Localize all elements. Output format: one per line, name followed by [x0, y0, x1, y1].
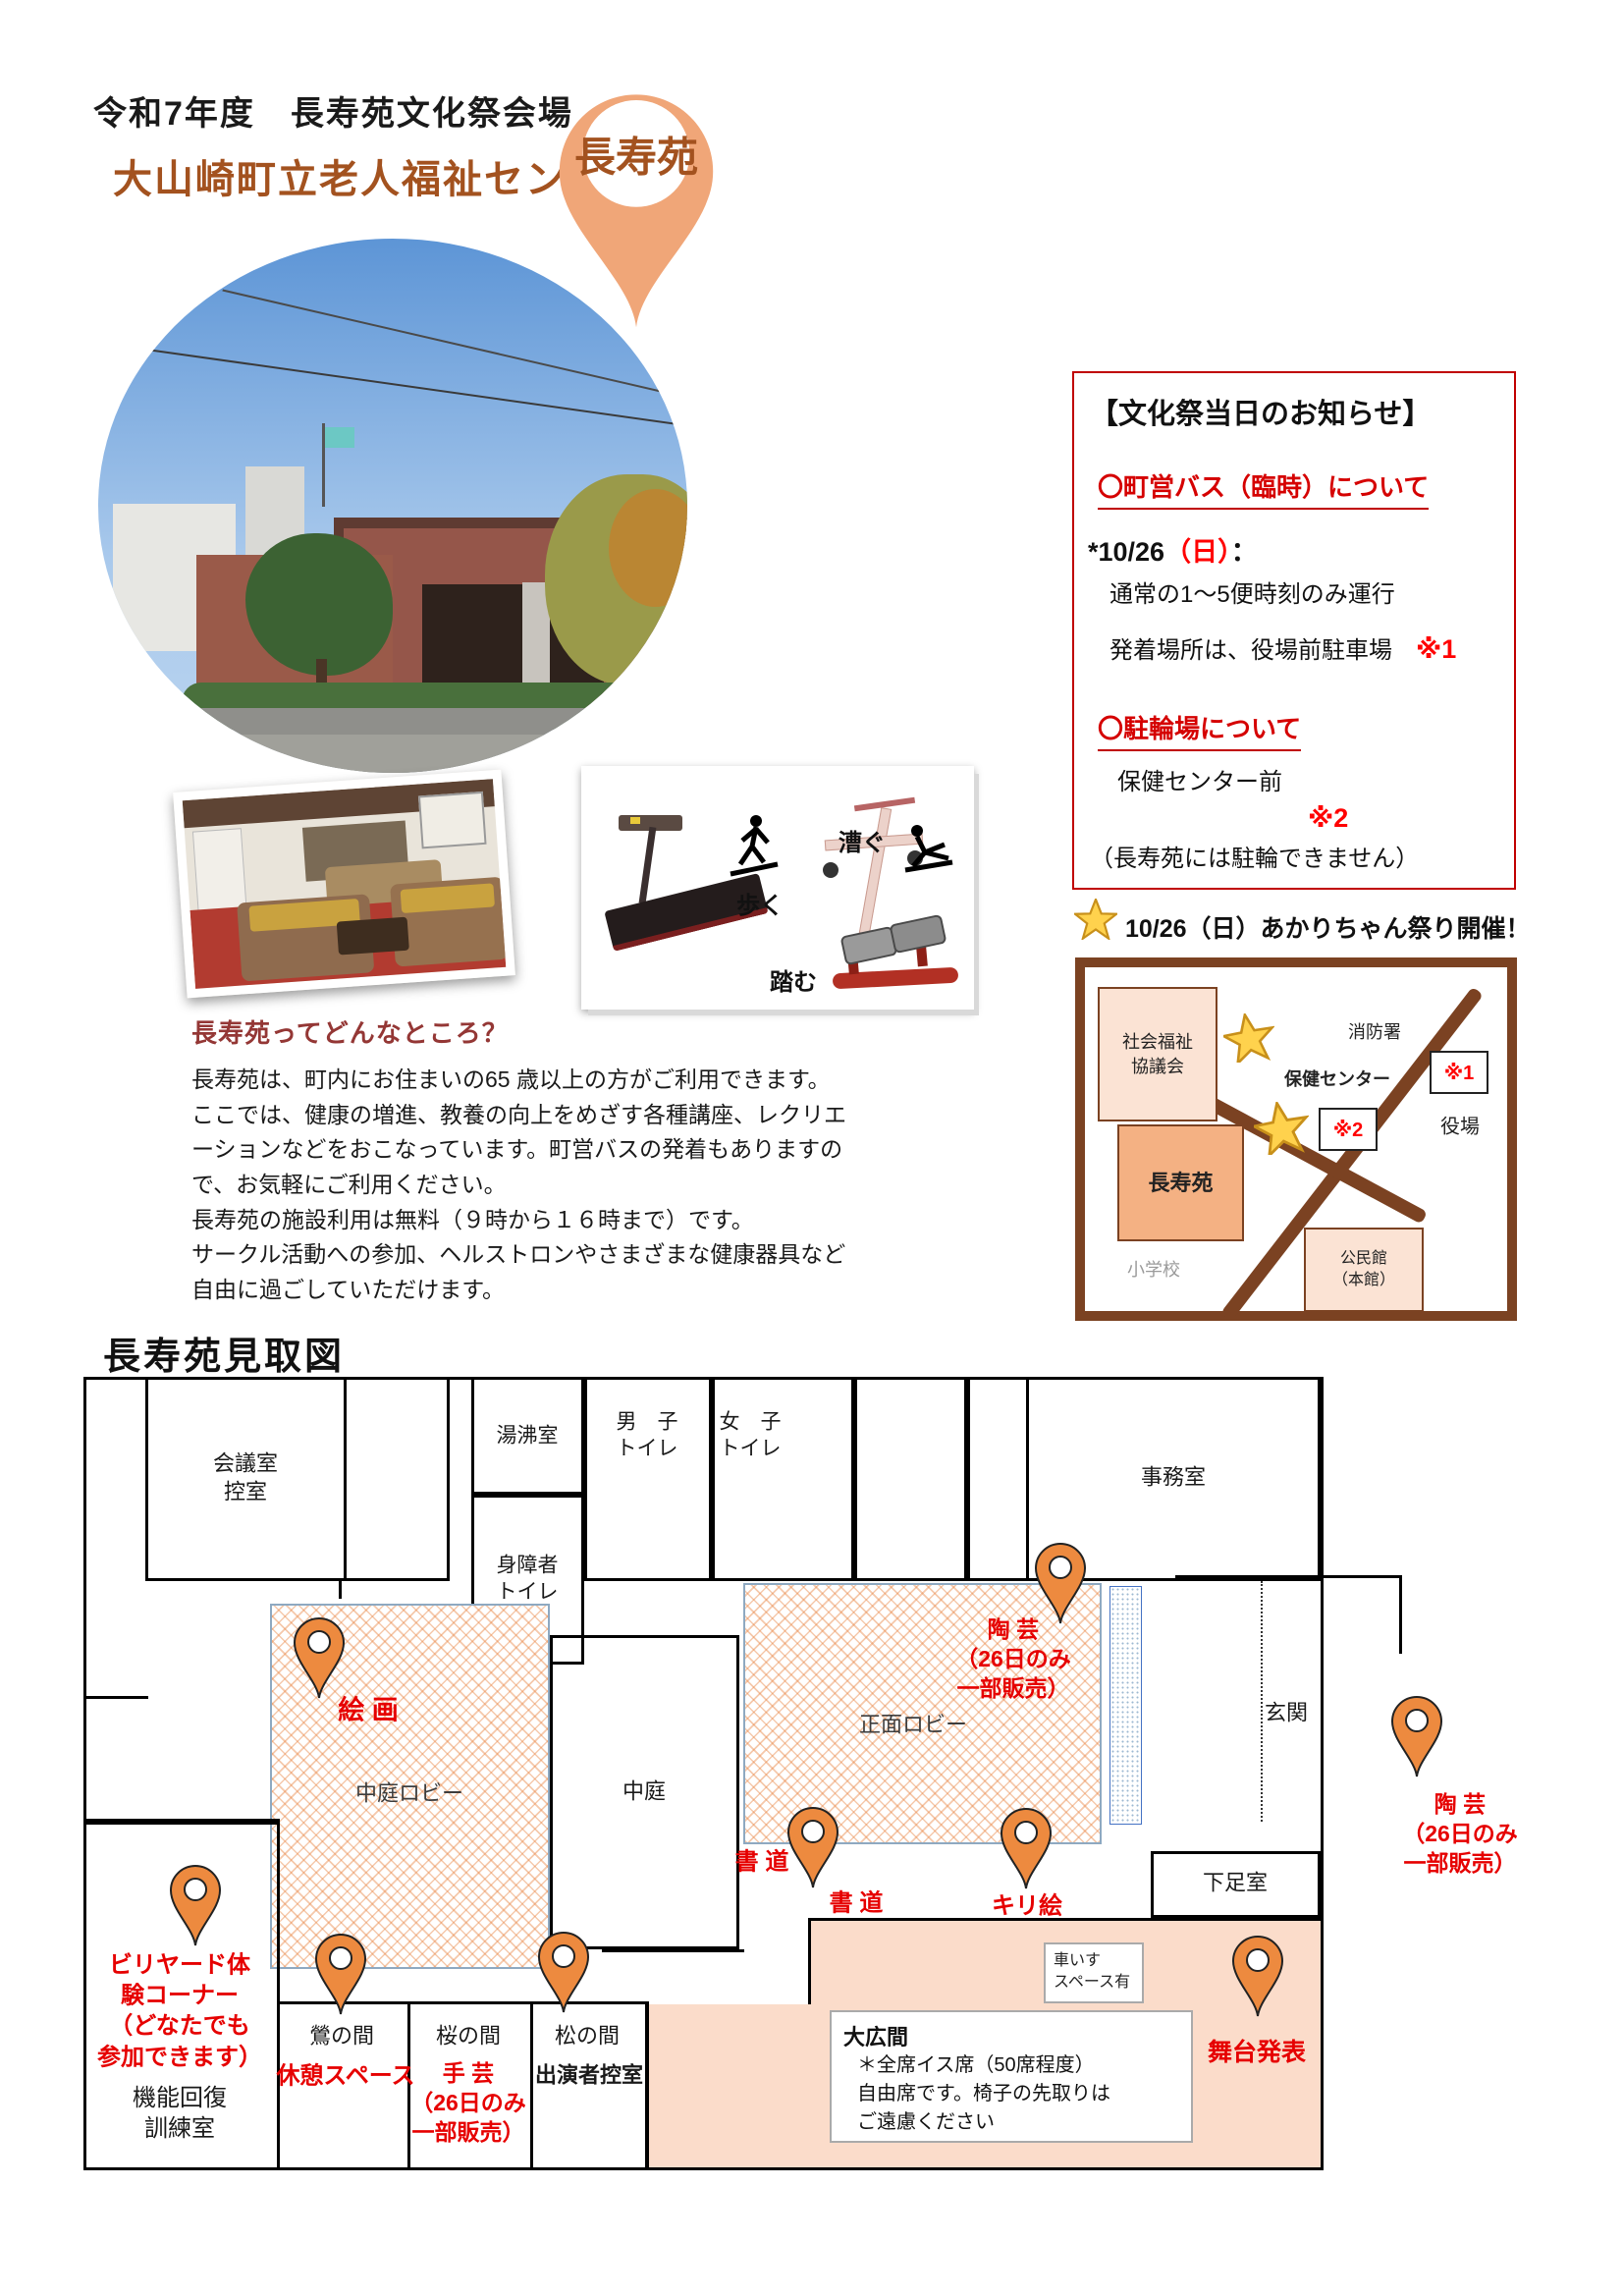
wall: [1321, 1377, 1324, 2170]
bus-date-black: *10/26: [1088, 537, 1164, 567]
flyer-page: 令和7年度 長寿苑文化祭会場 大山崎町立老人福祉センター 長寿苑: [0, 0, 1623, 2296]
room: [270, 1604, 550, 1969]
step-label: 踏む: [770, 962, 817, 997]
star-icon: [1074, 899, 1117, 940]
floor-label: 手 芸 （26日のみ 一部販売）: [410, 2059, 526, 2148]
floor-label: 事務室: [1141, 1464, 1206, 1493]
floor-label: 桜の間: [436, 2023, 501, 2051]
floor-label: 中庭: [622, 1778, 666, 1807]
wall: [1399, 1575, 1402, 1654]
room: [854, 1377, 967, 1581]
room: [145, 1377, 450, 1581]
about-heading: 長寿苑ってどんなところ？: [191, 1013, 509, 1050]
location-pin-icon: [1388, 1695, 1445, 1778]
room: [277, 2001, 410, 2170]
location-pin-icon: [291, 1616, 348, 1700]
hall-heading: 大広間: [843, 2020, 1179, 2051]
table: [337, 917, 409, 956]
area-map: 社会福祉 協議会長寿苑公民館 （本館）消防署保健センター役場小学校※1※2: [1075, 957, 1517, 1321]
bus-line1: 通常の1～5便時刻のみ運行: [1109, 574, 1395, 609]
map-building: 公民館 （本館）: [1304, 1228, 1424, 1312]
walking-person-icon: [727, 813, 784, 878]
bike-line1: 保健センター前: [1117, 762, 1282, 796]
map-star-icon: [1254, 1102, 1309, 1157]
room: [83, 1822, 280, 2170]
stepper-pedal: [839, 926, 897, 966]
corridor-strip: [1109, 1586, 1142, 1825]
floor-label: 書 道: [735, 1846, 789, 1877]
ref2: ※2: [1308, 803, 1348, 834]
wall: [808, 1918, 1324, 1921]
notice-box: 【文化祭当日のお知らせ】 〇町営バス（臨時）について *10/26（日）： 通常…: [1072, 371, 1516, 890]
floor-label: 玄関: [1265, 1700, 1308, 1728]
treadmill-post: [639, 827, 657, 903]
wall: [1175, 1575, 1402, 1578]
location-pin-icon: [998, 1807, 1055, 1890]
map-building: 長寿苑: [1117, 1124, 1244, 1241]
wall: [339, 1581, 342, 1599]
door: [192, 828, 247, 913]
location-pin-icon: [535, 1931, 592, 2014]
floor-label: 男 子 トイレ: [617, 1409, 678, 1463]
wall: [83, 1377, 86, 2170]
location-pin-icon: [167, 1864, 224, 1947]
floor-label: 鶯の間: [309, 2023, 374, 2051]
room: [967, 1377, 1321, 1581]
floor-label: 松の間: [555, 2023, 620, 2051]
location-pin-icon: [1032, 1542, 1089, 1625]
room: [584, 1377, 712, 1581]
bus-date: *10/26（日）：: [1088, 530, 1258, 569]
wall: [83, 1819, 280, 1822]
bike-pedal: [823, 862, 839, 878]
chojuen-pin-icon: [553, 72, 720, 329]
floor-label: 下足室: [1203, 1870, 1268, 1898]
floor-label: ビリヤード体 験コーナー （どなたでも 参加できます）: [97, 1950, 262, 2073]
wall: [1026, 1377, 1029, 1581]
location-pin-icon: [1229, 1935, 1286, 2018]
floor-label: キリ絵: [992, 1890, 1062, 1921]
notice-title: 【文化祭当日のお知らせ】: [1090, 391, 1431, 432]
ref1: ※1: [1416, 634, 1456, 664]
wall: [344, 1377, 347, 1581]
map-callout: ※1: [1430, 1051, 1488, 1094]
wall: [83, 1696, 148, 1699]
bulletin-board: [418, 792, 487, 848]
floor-label: 機能回復 訓練室: [133, 2083, 227, 2144]
dotted-wall: [1261, 1581, 1263, 1822]
map-star-icon: [1223, 1013, 1274, 1065]
page-title: 令和7年度 長寿苑文化祭会場: [93, 86, 573, 135]
floor-label: 陶 芸 （26日のみ 一部販売）: [1402, 1790, 1518, 1879]
room: [1151, 1851, 1321, 1918]
about-body: 長寿苑は、町内にお住まいの65 歳以上の方がご利用できます。 ここでは、健康の増…: [191, 1063, 977, 1307]
lounge-photo: [173, 770, 515, 999]
room: [808, 1918, 1321, 2170]
floor-label: 陶 芸 （26日のみ 一部販売）: [955, 1615, 1071, 1704]
floor-label: 会議室 控室: [213, 1449, 278, 1505]
map-callout: ※2: [1319, 1108, 1378, 1151]
floor-label: 出演者控室: [535, 2062, 643, 2091]
hall-note: ＊全席イス席（50席程度） 自由席です。椅子の先取りは ご遠慮ください: [843, 2051, 1179, 2137]
power-line: [98, 338, 687, 435]
map-label: 小学校: [1127, 1256, 1180, 1282]
wheelchair-note: 車いす スペース有: [1044, 1942, 1144, 2003]
map-label: 保健センター: [1284, 1066, 1390, 1091]
wall: [646, 2001, 649, 2170]
room: [550, 1635, 739, 1949]
location-pin-icon: [312, 1933, 369, 2016]
floor-label: 湯沸室: [497, 1422, 559, 1449]
bus-heading: 〇町営バス（臨時）について: [1098, 467, 1429, 510]
wall: [602, 1949, 744, 1952]
map-building: 社会福祉 協議会: [1098, 987, 1217, 1121]
floor-label: 中庭ロビー: [355, 1780, 463, 1809]
star-headline: 10/26（日）あかりちゃん祭り開催！: [1125, 909, 1531, 945]
rowing-person-icon: [901, 823, 956, 874]
walk-label: 歩く: [736, 886, 784, 920]
row-label: 漕ぐ: [839, 823, 886, 857]
room: [530, 2001, 648, 2170]
pin-label: 長寿苑: [574, 125, 698, 185]
hall-info-box: 大広間＊全席イス席（50席程度） 自由席です。椅子の先取りは ご遠慮ください: [830, 2010, 1193, 2143]
floor-label: 舞台発表: [1208, 2037, 1306, 2069]
bike-heading: 〇駐輪場について: [1098, 709, 1301, 751]
room: [712, 1377, 854, 1581]
floor-label: 絵 画: [338, 1693, 399, 1727]
floor-label: 女 子 トイレ: [720, 1409, 782, 1463]
flag: [325, 427, 354, 448]
stepper-pedal: [889, 914, 947, 955]
bus-date-colon: ：: [1231, 537, 1258, 567]
map-label: 消防署: [1348, 1018, 1401, 1044]
floor-label: 正面ロビー: [859, 1712, 967, 1740]
bike-line2: （長寿苑には駐輪できません）: [1090, 839, 1419, 873]
floor-label: 書 道: [830, 1887, 884, 1918]
room: [743, 1583, 1102, 1844]
floorplan-title: 長寿苑見取図: [103, 1326, 345, 1380]
bus-date-red: （日）: [1164, 537, 1231, 567]
stepper-column: [916, 947, 928, 967]
building-photo: [98, 239, 687, 773]
room: [471, 1377, 584, 1495]
room: [646, 2004, 811, 2170]
bus-line2: 発着場所は、役場前駐車場 ※1: [1109, 630, 1456, 665]
wall: [83, 2167, 1324, 2170]
equipment-photo: 歩く 漕ぐ 踏む: [581, 766, 974, 1010]
floor-label: 休憩スペース: [276, 2060, 414, 2091]
floor-label: 身障者 トイレ: [497, 1553, 559, 1607]
location-pin-icon: [784, 1806, 841, 1889]
treadmill-display: [630, 817, 640, 824]
room: [407, 2001, 533, 2170]
map-label: 役場: [1440, 1111, 1480, 1139]
wall: [808, 1918, 811, 2004]
room: [471, 1495, 584, 1665]
